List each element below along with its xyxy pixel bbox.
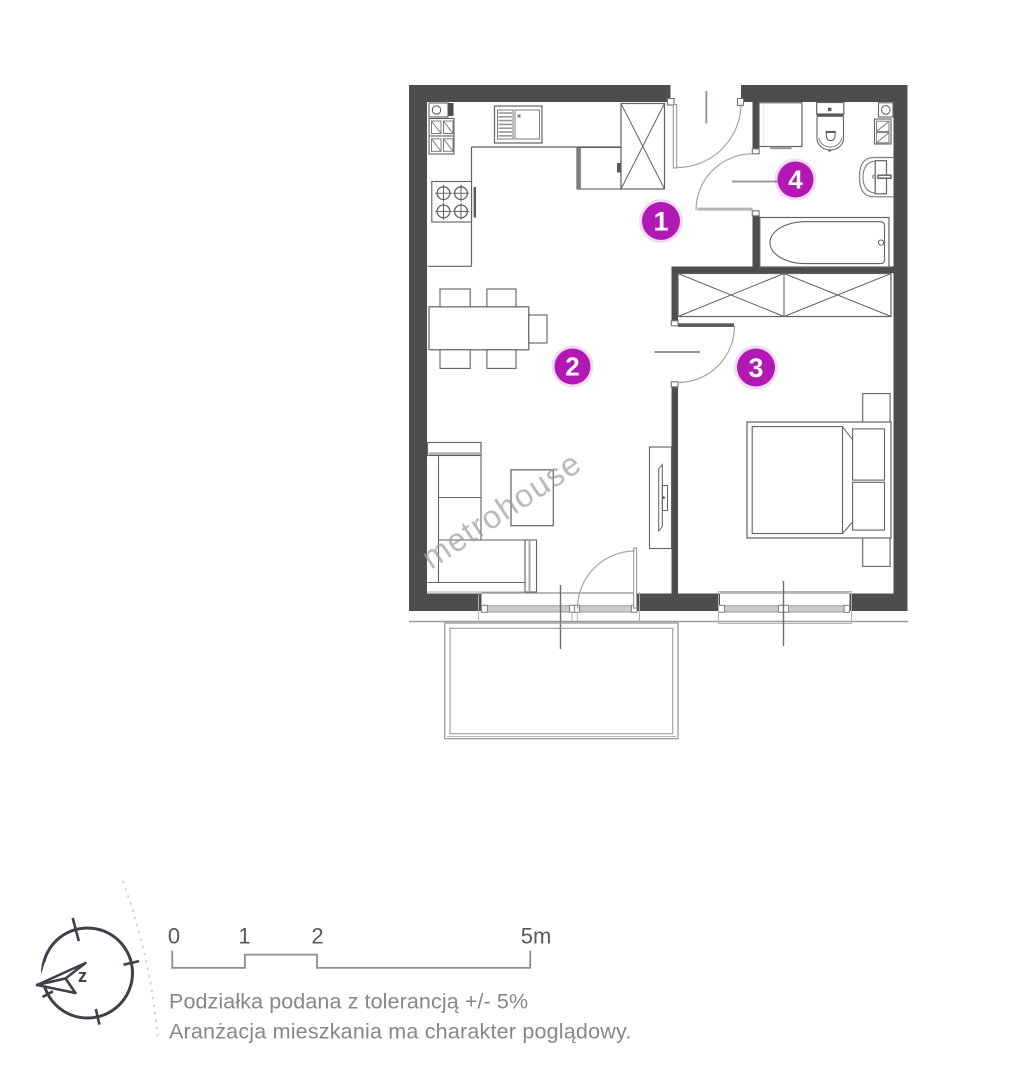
svg-text:2: 2	[311, 924, 323, 949]
svg-text:0: 0	[168, 924, 180, 949]
svg-text:2: 2	[565, 352, 579, 382]
svg-text:1: 1	[238, 924, 250, 949]
svg-text:Podziałka podana z tolerancją: Podziałka podana z tolerancją +/- 5%	[169, 990, 528, 1014]
svg-text:5m: 5m	[521, 924, 552, 949]
svg-text:4: 4	[788, 165, 803, 195]
svg-text:3: 3	[748, 353, 763, 383]
svg-text:z: z	[78, 966, 87, 986]
svg-text:1: 1	[653, 207, 668, 237]
svg-text:Aranżacja mieszkania ma charak: Aranżacja mieszkania ma charakter pogląd…	[169, 1020, 632, 1044]
